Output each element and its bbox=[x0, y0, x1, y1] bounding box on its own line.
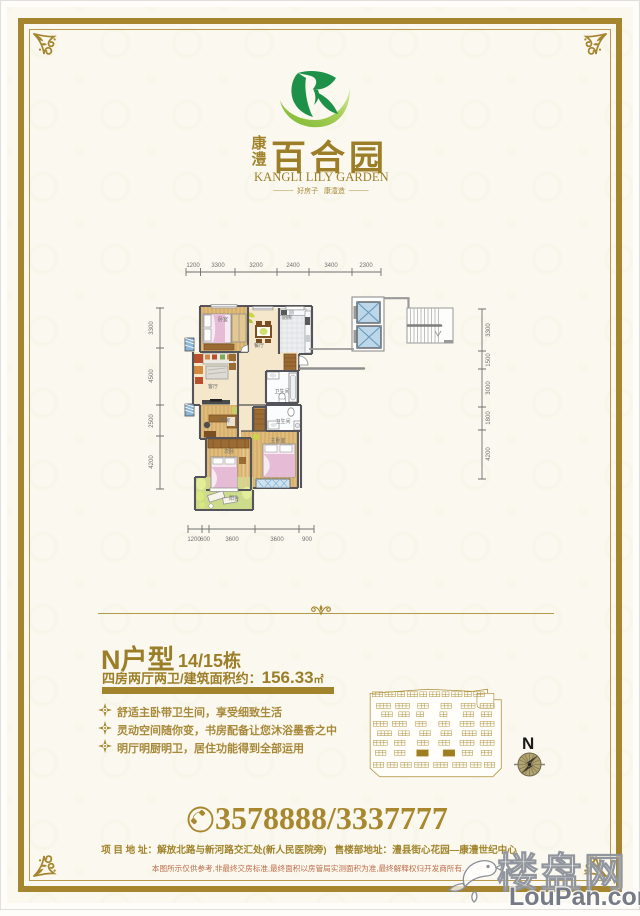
svg-text:900: 900 bbox=[302, 537, 313, 543]
svg-text:次卧: 次卧 bbox=[224, 448, 234, 455]
svg-text:卫生间: 卫生间 bbox=[275, 418, 290, 425]
svg-text:餐厅: 餐厅 bbox=[254, 342, 264, 349]
svg-text:LouPan.com: LouPan.com bbox=[509, 883, 640, 911]
svg-text:阳台: 阳台 bbox=[229, 495, 239, 502]
svg-text:3200: 3200 bbox=[249, 263, 263, 269]
svg-text:3300: 3300 bbox=[149, 321, 155, 335]
svg-text:4500: 4500 bbox=[149, 369, 155, 383]
svg-text:客厅: 客厅 bbox=[208, 383, 218, 390]
svg-text:3300: 3300 bbox=[486, 323, 492, 337]
svg-text:书房: 书房 bbox=[220, 417, 230, 424]
svg-text:3600: 3600 bbox=[225, 537, 239, 543]
svg-text:4200: 4200 bbox=[486, 447, 492, 461]
svg-text:1800: 1800 bbox=[486, 411, 492, 425]
svg-text:2300: 2300 bbox=[359, 263, 373, 269]
svg-text:2400: 2400 bbox=[286, 263, 300, 269]
svg-text:卧室: 卧室 bbox=[218, 316, 228, 323]
svg-text:厨房: 厨房 bbox=[282, 314, 292, 321]
svg-text:主卧室: 主卧室 bbox=[270, 437, 285, 444]
svg-text:3300: 3300 bbox=[211, 263, 225, 269]
svg-text:600: 600 bbox=[200, 537, 211, 543]
svg-text:3400: 3400 bbox=[324, 263, 338, 269]
svg-text:3600: 3600 bbox=[270, 537, 284, 543]
svg-text:2500: 2500 bbox=[149, 414, 155, 428]
svg-text:卫生间: 卫生间 bbox=[274, 388, 289, 395]
svg-text:3000: 3000 bbox=[486, 381, 492, 395]
svg-text:4200: 4200 bbox=[149, 455, 155, 469]
svg-text:1200: 1200 bbox=[186, 263, 200, 269]
svg-text:1500: 1500 bbox=[486, 353, 492, 367]
